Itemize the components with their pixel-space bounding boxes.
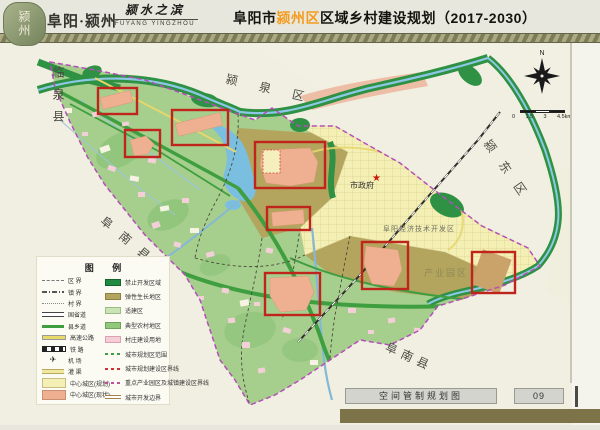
legend-item-district-boundary: 区 界 [42, 275, 104, 286]
city-planning-scope-symbol [105, 353, 121, 355]
scanned-plan-page: { "header": { "seal": "颍州", "brand": "阜阳… [0, 0, 600, 425]
legend-item-industry-park-line: 重点产业园区及城镇建设区界线 [105, 376, 169, 390]
page-edge-dark-line [575, 386, 578, 407]
city-planned-swatch [42, 378, 66, 388]
map-name-box: 空间管制规划图 [345, 388, 497, 404]
legend-item-county-road: 县乡道 [42, 321, 104, 332]
industry-park-line-symbol [105, 382, 121, 384]
town-boundary-symbol [42, 291, 64, 293]
right-margin [572, 43, 600, 425]
city-existing-swatch [42, 390, 66, 400]
county-road-symbol [42, 325, 64, 328]
compass-north-label: N [512, 50, 572, 57]
elastic-zone-swatch [105, 293, 121, 300]
brand-text: 阜阳·颍州 [47, 10, 117, 31]
government-star-icon: ★ [372, 173, 381, 184]
legend-item-suitable-zone: 适建区 [105, 304, 169, 318]
city-construction-line-symbol [105, 368, 121, 370]
page-header: 颍州 阜阳·颍州 颍水之滨 FUYANG YINGZHOU 阜阳市颍州区区域乡村… [0, 0, 600, 33]
village-boundary-symbol [42, 303, 64, 304]
label-dev-zone: 阜阳经济技术开发区 [383, 224, 455, 234]
bottom-olive-bar [340, 409, 600, 423]
legend-item-city-planned: 中心城区(规划) [42, 378, 104, 389]
rural-community-swatch [105, 322, 121, 329]
legend-title: 图 例 [37, 261, 169, 274]
suitable-zone-swatch [105, 307, 121, 314]
page-title: 阜阳市颍州区区域乡村建设规划（2017-2030） [233, 8, 536, 28]
legend-item-city-existing: 中心城区(现状) [42, 389, 104, 400]
legend-item-village-boundary: 村 界 [42, 298, 104, 309]
airport-icon: ✈ [42, 356, 64, 364]
scale-bar [512, 110, 572, 113]
title-highlight: 颍州区 [277, 10, 321, 26]
legend-left-column: 区 界 镇 界 村 界 国省道 县乡道 高速公路 铁 路 ✈机 场 灌 渠 中心… [42, 275, 104, 400]
page-number-box: 09 [514, 388, 564, 404]
legend-item-city-planning-scope: 城市规划区范围 [105, 347, 169, 361]
legend-item-town-boundary: 镇 界 [42, 286, 104, 297]
legend-item-development-edge: 城市开发边界 [105, 390, 169, 404]
label-industrial-park: 产业园区 [424, 266, 468, 279]
slogan-cn: 颍水之滨 [112, 1, 198, 18]
map-legend: 图 例 区 界 镇 界 村 界 国省道 县乡道 高速公路 铁 路 ✈机 场 灌 … [36, 256, 170, 405]
legend-item-national-road: 国省道 [42, 309, 104, 320]
expressway-symbol [42, 335, 66, 340]
scale-labels: 0 1.5 3 4.5km [512, 114, 572, 120]
development-edge-symbol [105, 395, 121, 399]
district-boundary-symbol [42, 280, 64, 281]
legend-item-rural-community: 典型农村地区 [105, 318, 169, 332]
national-road-symbol [42, 312, 64, 317]
legend-item-airport: ✈机 场 [42, 355, 104, 366]
village-land-swatch [105, 336, 121, 343]
railway-symbol [42, 346, 66, 352]
canal-symbol [42, 369, 64, 374]
yingzhou-seal-logo: 颍州 [3, 2, 46, 46]
legend-item-city-construction-line: 城市规划建设区界线 [105, 361, 169, 375]
compass-rose-icon [523, 57, 561, 95]
legend-item-railway: 铁 路 [42, 343, 104, 354]
legend-item-elastic-zone: 弹性生长地区 [105, 289, 169, 303]
label-city-government: 市政府 [350, 180, 374, 191]
legend-item-forbidden-zone: 禁止开发区域 [105, 275, 169, 289]
legend-item-canal: 灌 渠 [42, 366, 104, 377]
page-edge-line [570, 43, 572, 383]
slogan-block: 颍水之滨 FUYANG YINGZHOU [112, 1, 198, 27]
legend-right-column: 禁止开发区域 弹性生长地区 适建区 典型农村地区 村庄建设用地 城市规划区范围 … [105, 275, 169, 405]
legend-item-village-land: 村庄建设用地 [105, 333, 169, 347]
legend-item-expressway: 高速公路 [42, 332, 104, 343]
forbidden-zone-swatch [105, 279, 121, 286]
seal-text: 颍州 [16, 10, 33, 38]
compass-block: N 0 1.5 3 4.5km [512, 50, 572, 120]
slogan-en: FUYANG YINGZHOU [112, 19, 198, 27]
label-linquan-county: 临泉县 [50, 66, 67, 132]
braided-border [0, 33, 600, 43]
